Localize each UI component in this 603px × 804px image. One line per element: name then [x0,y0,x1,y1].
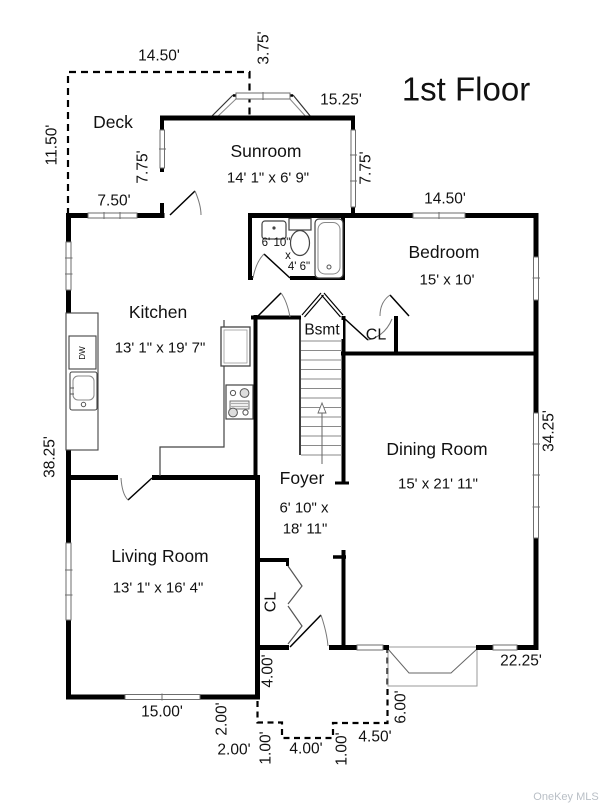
bedroom-door [380,295,409,316]
front-door [290,615,328,647]
dim-sunroom-left: 7.75' [135,150,152,183]
room-label-bsmt: Bsmt [304,322,340,339]
dim-bay-offset: 3.75' [256,31,273,64]
room-size-foyer-1: 6' 10" x [279,500,329,517]
room-label-dining: Dining Room [386,439,487,459]
room-size-living: 13' 1" x 16' 4" [113,580,204,597]
deck-door [170,191,201,215]
dim-front-jog: 4.00' [260,654,277,687]
dim-west-side: 38.25' [42,436,59,478]
dim-step-right: 1.00' [334,732,351,765]
dim-sunroom-right: 7.75' [358,151,375,184]
room-label-hall-closet: CL [366,327,387,344]
refrigerator [221,327,250,366]
bathroom-depth-label: 4' 6" [288,261,310,273]
room-label-living: Living Room [111,546,208,566]
dim-stoop-depth: 6.00' [393,690,410,723]
room-label-foyer-closet: CL [263,592,280,613]
room-size-kitchen: 13' 1" x 19' 7" [115,340,206,357]
foyer-closet-bifold-door [288,566,302,644]
kitchen-fixtures [66,313,253,476]
room-label-deck: Deck [93,112,133,132]
dining-bay-window [388,647,477,686]
floorplan-drawing: 1st Floor Deck Sunroom 14' 1" x 6' 9" Be… [0,0,603,804]
kitchen-hall-door [257,293,290,317]
room-label-foyer: Foyer [280,468,325,488]
room-size-foyer-2: 18' 11" [283,521,328,538]
dim-bedroom-width: 14.50' [424,191,466,208]
dim-landing: 4.50' [358,729,391,746]
dim-deck-back: 7.50' [97,193,130,210]
dishwasher-label: DW [78,346,87,360]
bathtub-fixture [315,219,343,278]
dim-sunroom-width: 15.25' [320,92,362,109]
dim-deck-width: 14.50' [138,48,180,65]
dim-living-front: 15.00' [141,704,183,721]
room-label-sunroom: Sunroom [230,141,301,161]
dim-deck-depth: 11.50' [44,125,61,166]
front-steps-outline [258,650,388,738]
room-label-kitchen: Kitchen [129,302,187,322]
room-size-dining: 15' x 21' 11" [398,476,478,493]
room-size-sunroom: 14' 1" x 6' 9" [227,170,309,187]
stove [226,385,253,419]
basement-door [302,293,343,317]
deck-outline [68,72,250,215]
dim-east-side: 34.25' [541,410,558,452]
toilet-fixture [289,219,311,256]
page-title: 1st Floor [402,71,530,108]
floorplan-sheet: 1st Floor Deck Sunroom 14' 1" x 6' 9" Be… [0,0,603,804]
dim-dining-front: 22.25' [500,653,542,670]
room-label-bedroom: Bedroom [408,242,479,262]
bathroom-width-label: 6' 10" [262,237,291,249]
dim-step-left: 1.00' [258,731,275,764]
living-room-door [121,478,152,500]
dim-stoop-rise: 2.00' [214,702,231,735]
room-size-bedroom: 15' x 10' [420,272,475,289]
dim-stoop-run: 2.00' [217,742,250,759]
labels: 1st Floor Deck Sunroom 14' 1" x 6' 9" Be… [78,71,599,804]
watermark: OneKey MLS [533,791,598,803]
staircase [301,320,343,464]
kitchen-sink-fixture [70,372,97,410]
dim-steps-width: 4.00' [289,741,322,758]
